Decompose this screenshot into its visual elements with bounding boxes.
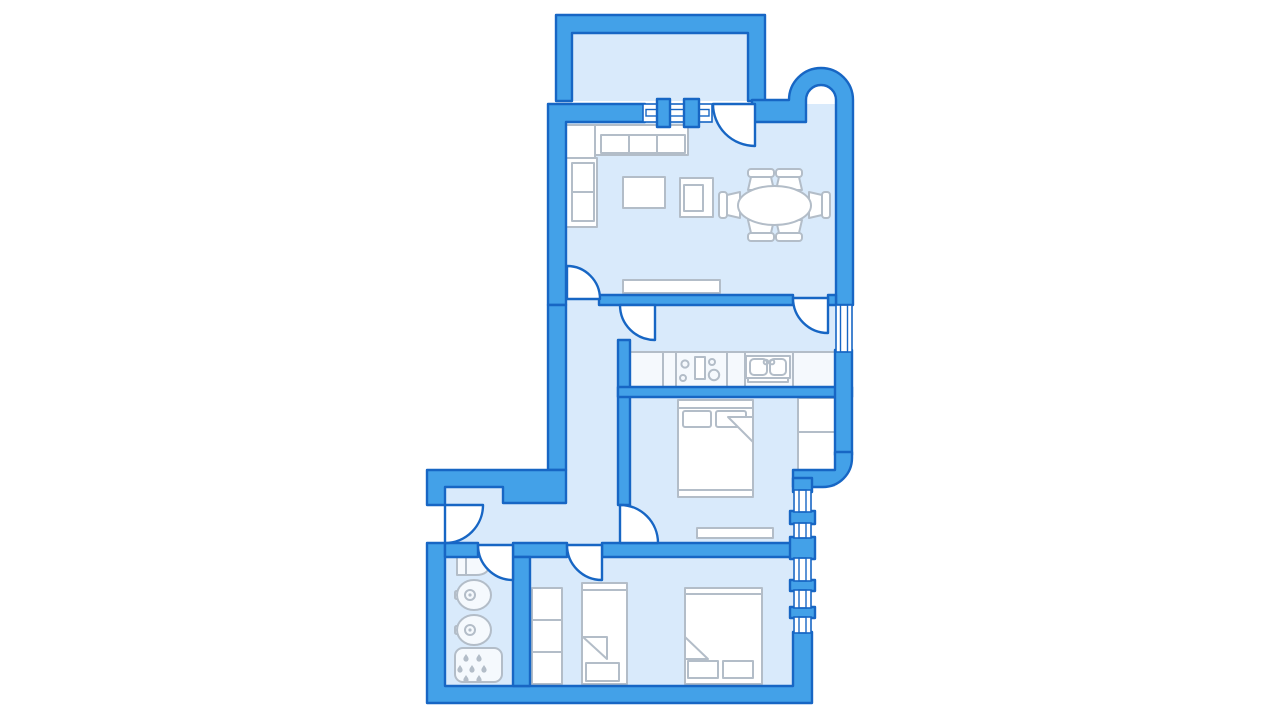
living-room-radiator	[623, 280, 720, 293]
double-bed-kids	[685, 588, 762, 684]
pillow	[683, 411, 711, 427]
kitchen-counter	[630, 352, 835, 387]
pillow	[586, 663, 619, 681]
wardrobe-kids	[532, 588, 562, 684]
oval-dining-table	[738, 186, 811, 225]
window-strip-block	[790, 537, 815, 559]
bedroom-west-wall	[618, 340, 630, 505]
shower-tray	[455, 648, 502, 683]
armchair	[680, 178, 713, 217]
kitchen-east-window	[836, 305, 852, 352]
living-room-south-wall	[599, 295, 793, 305]
floor-plan-canvas	[0, 0, 1280, 720]
wardrobe-master	[798, 398, 835, 470]
window-strip-block	[790, 511, 815, 524]
bedroom-east-wall	[835, 350, 852, 455]
bathroom-east-wall	[513, 557, 530, 686]
single-bed	[582, 583, 627, 684]
corridor-west-wall	[548, 305, 566, 470]
window-post	[657, 99, 670, 127]
double-bed-master	[678, 400, 753, 497]
pillow	[723, 661, 753, 678]
window-post	[684, 99, 699, 127]
south-wall-segment	[513, 543, 567, 557]
double-sink	[746, 356, 790, 382]
dining-chair	[809, 192, 830, 218]
kitchen-furniture	[630, 352, 835, 387]
balcony-floor	[572, 33, 748, 101]
south-wall-segment	[445, 543, 478, 557]
south-wall-segment	[602, 543, 793, 557]
bedroom-radiator	[697, 528, 773, 538]
dining-chair	[719, 192, 740, 218]
floor-plan-drawing	[0, 0, 1280, 720]
kitchen-south-wall	[618, 387, 852, 397]
coffee-table	[623, 177, 665, 208]
pillow	[688, 661, 718, 678]
